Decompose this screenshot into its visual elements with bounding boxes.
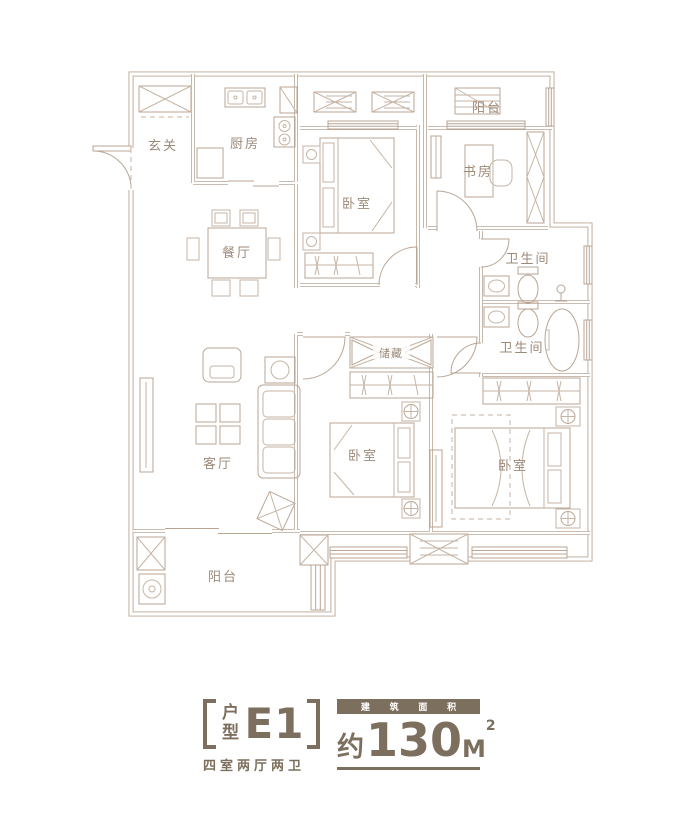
kitchen-fixtures xyxy=(197,87,297,178)
ac-box-bottom xyxy=(410,534,468,564)
room-label-bedroom-master: 卧室 xyxy=(498,458,528,474)
ac-platform-unit-1 xyxy=(314,92,356,112)
room-label-kitchen: 厨房 xyxy=(230,136,260,152)
window-bedroom-master-bottom xyxy=(472,547,567,558)
coffee-table xyxy=(196,404,216,422)
area-exponent: 2 xyxy=(486,719,496,733)
bath-bottom-fixtures xyxy=(484,302,579,371)
floorplan-page: 玄关 厨房 阳台 卧室 书房 卫生间 卫生间 餐厅 储藏 客厅 卧室 卧室 阳台… xyxy=(0,0,695,813)
kitchen-cabinet xyxy=(197,148,223,178)
sliding-doors xyxy=(165,181,279,534)
door-bath-bottom xyxy=(451,343,481,373)
door-entry xyxy=(93,146,131,190)
window-bedroom-top xyxy=(328,121,398,129)
unit-code: E1 xyxy=(242,699,307,749)
balcony-column-right xyxy=(300,535,328,565)
sofa xyxy=(258,385,300,478)
area-value: 130 xyxy=(366,717,462,763)
area-group: 建 筑 面 积 约 130 M 2 xyxy=(337,699,480,770)
ceiling-fan xyxy=(402,499,420,518)
window-study-top xyxy=(447,121,525,129)
room-label-balcony-top: 阳台 xyxy=(472,101,502,116)
balcony-bottom-fixtures xyxy=(139,574,165,604)
toilet-bath-top xyxy=(518,275,538,303)
window-bedroom-mid-bottom xyxy=(330,547,407,558)
ceiling-fan xyxy=(402,402,420,421)
unit-type-label: 户 型 xyxy=(216,699,242,749)
unit-type-group: 户 型 E1 四室两厅两卫 xyxy=(203,699,320,774)
room-label-living: 客厅 xyxy=(203,456,233,472)
area-value-row: 约 130 M 2 xyxy=(337,717,480,763)
door-bedroom-mid xyxy=(303,337,345,379)
bedroom-master-furniture xyxy=(430,378,580,528)
window-balcony-bottom-right xyxy=(311,565,325,610)
door-bedroom-master xyxy=(437,337,477,377)
nightstand xyxy=(303,146,320,163)
armchair xyxy=(203,348,241,382)
room-label-study: 书房 xyxy=(463,164,493,180)
room-label-bedroom-mid: 卧室 xyxy=(348,448,378,464)
room-label-storage: 储藏 xyxy=(379,346,403,360)
bedroom-mid-furniture xyxy=(330,372,433,518)
living-furniture xyxy=(140,348,300,531)
bracket-left-icon xyxy=(203,699,216,749)
layout-summary: 四室两厅两卫 xyxy=(203,755,320,774)
area-unit: M xyxy=(462,737,486,763)
room-label-bath-bottom: 卫生间 xyxy=(499,341,544,356)
room-label-bath-top: 卫生间 xyxy=(505,252,550,267)
nightstand xyxy=(303,233,320,250)
doors xyxy=(93,146,509,379)
door-bedroom-top xyxy=(379,247,417,285)
ac-platform-unit-2 xyxy=(372,92,414,112)
duct-shaft xyxy=(527,132,544,223)
room-labels: 玄关 厨房 阳台 卧室 书房 卫生间 卫生间 餐厅 储藏 客厅 卧室 卧室 阳台 xyxy=(148,101,551,585)
sink-bath-top xyxy=(484,276,509,296)
window-bath-bottom xyxy=(584,320,592,360)
bath-top-fixtures xyxy=(484,267,567,303)
room-label-entry: 玄关 xyxy=(148,139,178,154)
floorplan-drawing: 玄关 厨房 阳台 卧室 书房 卫生间 卫生间 餐厅 储藏 客厅 卧室 卧室 阳台 xyxy=(0,0,695,680)
room-label-dining: 餐厅 xyxy=(222,245,252,261)
window-bath-top xyxy=(584,246,592,284)
ceiling-fan xyxy=(556,407,580,426)
entry-closet xyxy=(139,86,191,117)
bracket-right-icon xyxy=(307,699,320,749)
type-char-bottom: 型 xyxy=(222,724,239,744)
window-balcony-top-right xyxy=(546,88,554,126)
ceiling-fan xyxy=(556,509,580,528)
sink-bath-bottom xyxy=(484,307,509,327)
type-char-top: 户 xyxy=(222,704,239,724)
bed-top xyxy=(320,138,394,233)
bathtub xyxy=(545,309,579,371)
toilet-tank xyxy=(518,267,538,274)
room-label-bedroom-top: 卧室 xyxy=(342,196,372,212)
toilet-bath-bottom xyxy=(518,309,538,337)
room-label-balcony-bottom: 阳台 xyxy=(208,570,238,585)
area-label: 建 筑 面 积 xyxy=(337,699,480,714)
area-prefix: 约 xyxy=(337,734,364,763)
balcony-column-left xyxy=(137,537,165,570)
title-block: 户 型 E1 四室两厅两卫 建 筑 面 积 约 130 M 2 xyxy=(203,699,480,774)
shower-head xyxy=(557,285,565,293)
